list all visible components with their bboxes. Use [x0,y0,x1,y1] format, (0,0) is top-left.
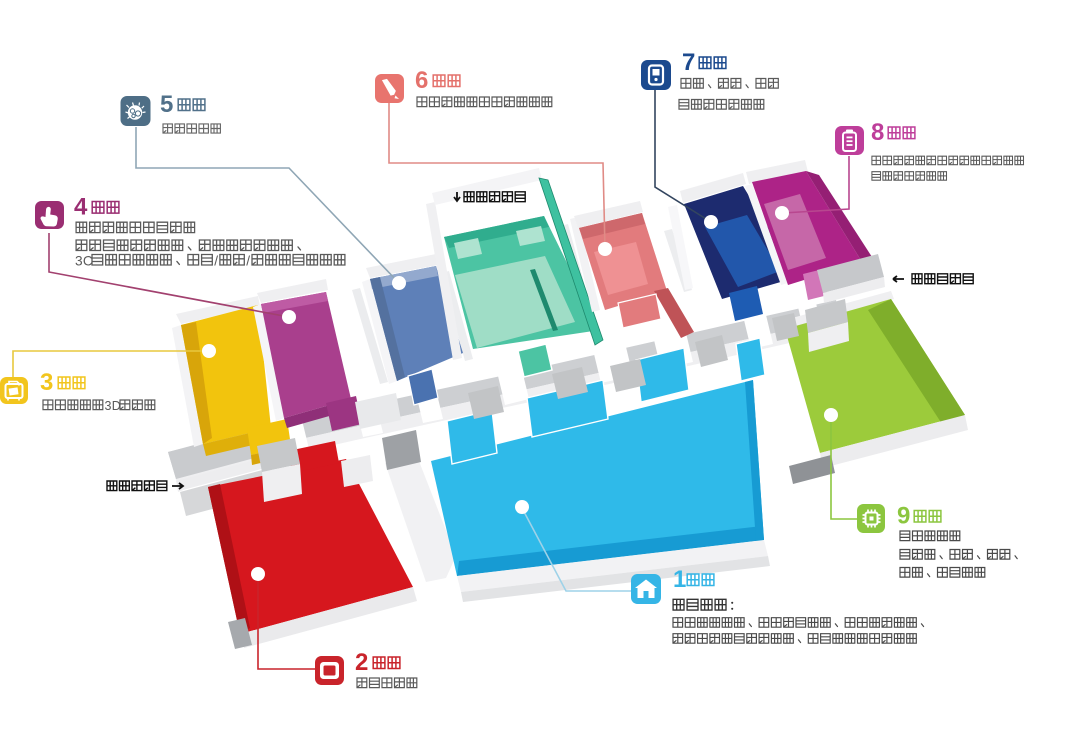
svg-text:5: 5 [160,91,173,118]
svg-text:3: 3 [40,369,53,396]
svg-text:/: / [214,254,218,269]
svg-text:1: 1 [673,566,686,593]
svg-text:4: 4 [74,194,88,221]
svg-text:2: 2 [355,649,368,676]
svg-text:3: 3 [75,254,83,269]
svg-text:8: 8 [871,119,884,146]
svg-text:3: 3 [105,399,112,413]
svg-text:7: 7 [682,49,695,76]
svg-text:/: / [246,254,250,269]
svg-text:9: 9 [897,503,910,530]
svg-text:6: 6 [415,67,428,94]
